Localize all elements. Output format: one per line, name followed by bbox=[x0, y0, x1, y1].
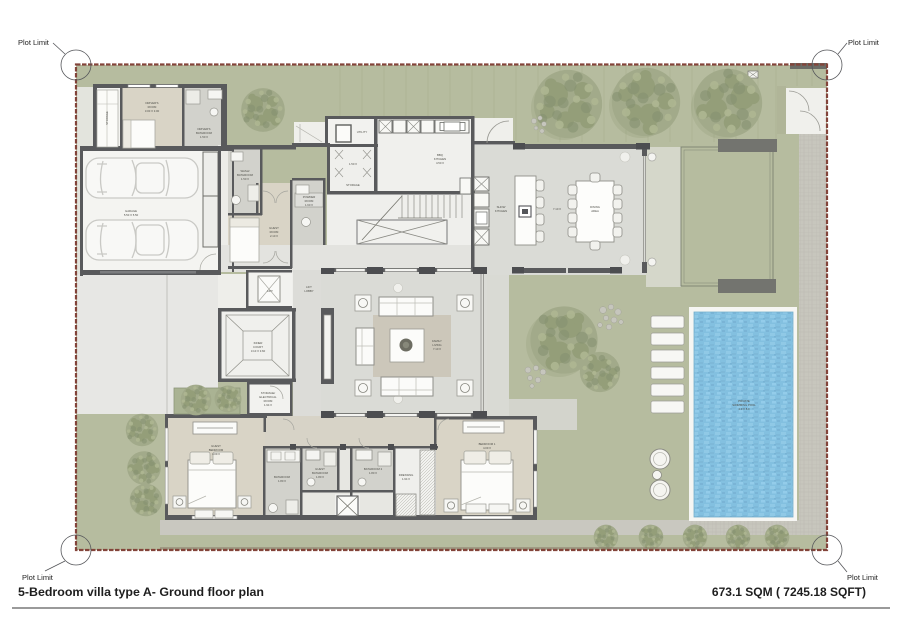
svg-text:Plot Limit: Plot Limit bbox=[848, 38, 880, 47]
svg-text:2.10 X: 2.10 X bbox=[270, 234, 278, 238]
svg-text:1.80 X: 1.80 X bbox=[278, 479, 286, 483]
svg-text:1.50 X: 1.50 X bbox=[349, 162, 357, 166]
svg-text:4.09 X: 4.09 X bbox=[212, 452, 220, 456]
svg-text:1.50 X: 1.50 X bbox=[241, 177, 249, 181]
svg-text:673.1 SQM ( 7245.18 SQFT): 673.1 SQM ( 7245.18 SQFT) bbox=[712, 585, 866, 599]
svg-text:LIFT: LIFT bbox=[267, 289, 273, 293]
svg-text:Plot Limit: Plot Limit bbox=[847, 573, 879, 582]
svg-text:1.60 X: 1.60 X bbox=[305, 203, 313, 207]
svg-text:5.50 X 5.50: 5.50 X 5.50 bbox=[124, 213, 139, 217]
svg-text:1.94 X: 1.94 X bbox=[402, 477, 410, 481]
svg-text:7.10 X: 7.10 X bbox=[433, 347, 441, 351]
svg-text:STORAGE: STORAGE bbox=[105, 111, 109, 125]
svg-text:4.50 X: 4.50 X bbox=[436, 161, 444, 165]
svg-text:Plot Limit: Plot Limit bbox=[18, 38, 50, 47]
svg-text:1.80 X: 1.80 X bbox=[316, 475, 324, 479]
svg-text:1.94 X: 1.94 X bbox=[264, 403, 272, 407]
svg-text:STORAGE: STORAGE bbox=[346, 183, 360, 187]
svg-text:1.50 X: 1.50 X bbox=[200, 135, 208, 139]
svg-text:LOBBY: LOBBY bbox=[304, 289, 313, 293]
svg-text:7.10 X: 7.10 X bbox=[553, 207, 561, 211]
svg-text:UTILITY: UTILITY bbox=[357, 130, 368, 134]
svg-text:3.00 X 3.00: 3.00 X 3.00 bbox=[145, 109, 160, 113]
svg-text:4.09 X: 4.09 X bbox=[483, 446, 491, 450]
svg-text:AREA: AREA bbox=[591, 209, 599, 213]
svg-text:KITCHEN: KITCHEN bbox=[495, 209, 507, 213]
svg-text:1.80 X: 1.80 X bbox=[369, 471, 377, 475]
svg-text:4.0 X 8.0: 4.0 X 8.0 bbox=[738, 407, 750, 411]
svg-text:Plot Limit: Plot Limit bbox=[22, 573, 54, 582]
svg-text:5-Bedroom villa type A- Ground: 5-Bedroom villa type A- Ground floor pla… bbox=[18, 585, 264, 599]
svg-text:3.10 X 3.60: 3.10 X 3.60 bbox=[251, 349, 266, 353]
